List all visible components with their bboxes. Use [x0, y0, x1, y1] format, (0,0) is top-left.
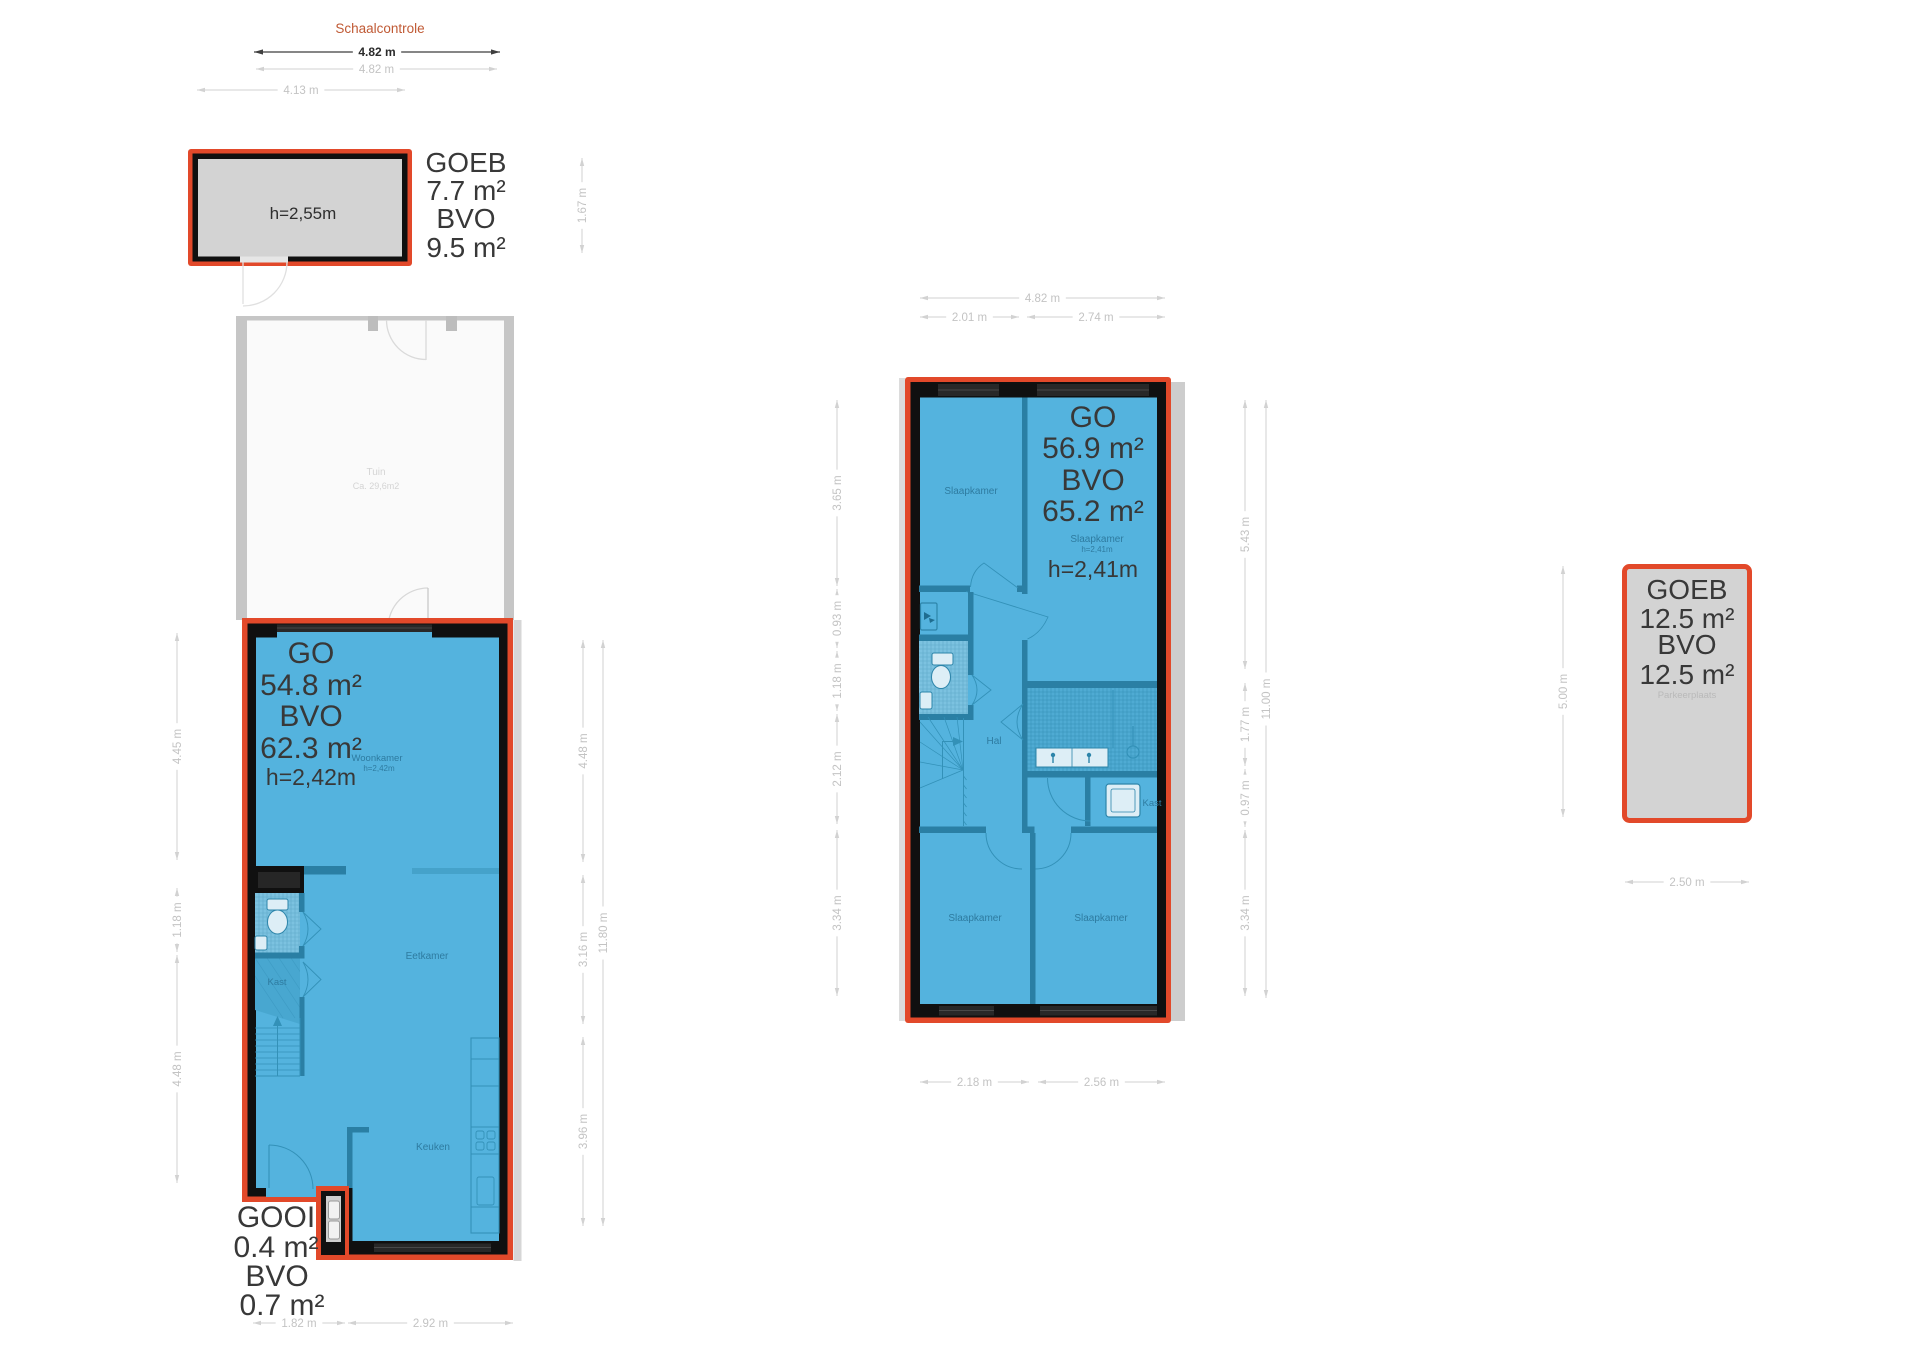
- svg-text:4.82 m: 4.82 m: [1025, 293, 1060, 305]
- svg-text:1.18 m: 1.18 m: [832, 663, 844, 698]
- svg-text:3.34 m: 3.34 m: [1240, 895, 1252, 930]
- svg-text:5.43 m: 5.43 m: [1240, 517, 1252, 552]
- svg-text:Woonkamer: Woonkamer: [351, 753, 402, 764]
- svg-text:GOEB: GOEB: [426, 147, 507, 178]
- svg-text:0.97 m: 0.97 m: [1240, 780, 1252, 815]
- svg-text:Keuken: Keuken: [416, 1142, 450, 1153]
- svg-text:3.34 m: 3.34 m: [832, 895, 844, 930]
- svg-text:1.18 m: 1.18 m: [172, 902, 184, 937]
- svg-text:GO: GO: [288, 637, 335, 670]
- svg-text:5.00 m: 5.00 m: [1558, 674, 1570, 709]
- svg-text:11.00 m: 11.00 m: [1261, 679, 1273, 720]
- svg-text:1.67 m: 1.67 m: [577, 188, 589, 223]
- svg-text:65.2 m²: 65.2 m²: [1042, 495, 1144, 528]
- svg-text:BVO: BVO: [279, 700, 342, 733]
- svg-text:3.65 m: 3.65 m: [832, 475, 844, 510]
- svg-text:56.9 m²: 56.9 m²: [1042, 432, 1144, 465]
- svg-text:h=2,42m: h=2,42m: [266, 764, 356, 790]
- svg-text:Slaapkamer: Slaapkamer: [1074, 913, 1128, 924]
- svg-text:4.48 m: 4.48 m: [172, 1051, 184, 1086]
- svg-text:54.8 m²: 54.8 m²: [260, 669, 362, 702]
- svg-text:BVO: BVO: [1061, 464, 1124, 497]
- svg-text:1.82 m: 1.82 m: [281, 1318, 316, 1330]
- svg-text:Tuin: Tuin: [366, 467, 385, 478]
- svg-text:Kast: Kast: [1142, 798, 1161, 809]
- svg-text:h=2,55m: h=2,55m: [270, 204, 337, 223]
- svg-text:h=2,42m: h=2,42m: [363, 764, 395, 773]
- svg-text:9.5 m²: 9.5 m²: [426, 232, 505, 263]
- svg-text:Kast: Kast: [267, 977, 286, 988]
- svg-text:3.96 m: 3.96 m: [578, 1114, 590, 1149]
- svg-text:Parkeerplaats: Parkeerplaats: [1658, 690, 1717, 701]
- svg-text:12.5 m²: 12.5 m²: [1640, 659, 1735, 690]
- svg-text:h=2,41m: h=2,41m: [1048, 556, 1138, 582]
- svg-text:2.56 m: 2.56 m: [1084, 1077, 1119, 1089]
- svg-text:Slaapkamer: Slaapkamer: [1070, 534, 1124, 545]
- svg-text:Slaapkamer: Slaapkamer: [948, 913, 1002, 924]
- svg-text:4.13 m: 4.13 m: [283, 85, 318, 97]
- svg-text:2.12 m: 2.12 m: [832, 751, 844, 786]
- svg-text:BVO: BVO: [436, 203, 495, 234]
- svg-text:2.01 m: 2.01 m: [952, 312, 987, 324]
- svg-text:Schaalcontrole: Schaalcontrole: [335, 21, 424, 36]
- svg-text:4.82 m: 4.82 m: [359, 64, 394, 76]
- svg-text:11.80 m: 11.80 m: [598, 913, 610, 954]
- svg-text:3.16 m: 3.16 m: [578, 932, 590, 967]
- svg-text:Eetkamer: Eetkamer: [406, 951, 449, 962]
- svg-text:BVO: BVO: [1657, 629, 1716, 660]
- svg-text:GO: GO: [1070, 401, 1117, 434]
- svg-text:4.45 m: 4.45 m: [172, 729, 184, 764]
- svg-text:2.18 m: 2.18 m: [957, 1077, 992, 1089]
- svg-text:0.93 m: 0.93 m: [832, 601, 844, 636]
- svg-text:2.50 m: 2.50 m: [1669, 877, 1704, 889]
- svg-text:2.92 m: 2.92 m: [413, 1318, 448, 1330]
- svg-text:Hal: Hal: [986, 736, 1001, 747]
- svg-text:7.7 m²: 7.7 m²: [426, 175, 505, 206]
- svg-text:4.82 m: 4.82 m: [358, 45, 395, 59]
- svg-text:4.48 m: 4.48 m: [578, 733, 590, 768]
- svg-text:2.74 m: 2.74 m: [1078, 312, 1113, 324]
- svg-text:h=2,41m: h=2,41m: [1081, 545, 1113, 554]
- svg-text:GOEB: GOEB: [1647, 574, 1728, 605]
- svg-text:GOOI: GOOI: [237, 1201, 315, 1234]
- svg-text:62.3 m²: 62.3 m²: [260, 732, 362, 765]
- svg-text:Ca. 29,6m2: Ca. 29,6m2: [353, 481, 400, 491]
- svg-text:Slaapkamer: Slaapkamer: [944, 486, 998, 497]
- svg-text:1.77 m: 1.77 m: [1240, 707, 1252, 742]
